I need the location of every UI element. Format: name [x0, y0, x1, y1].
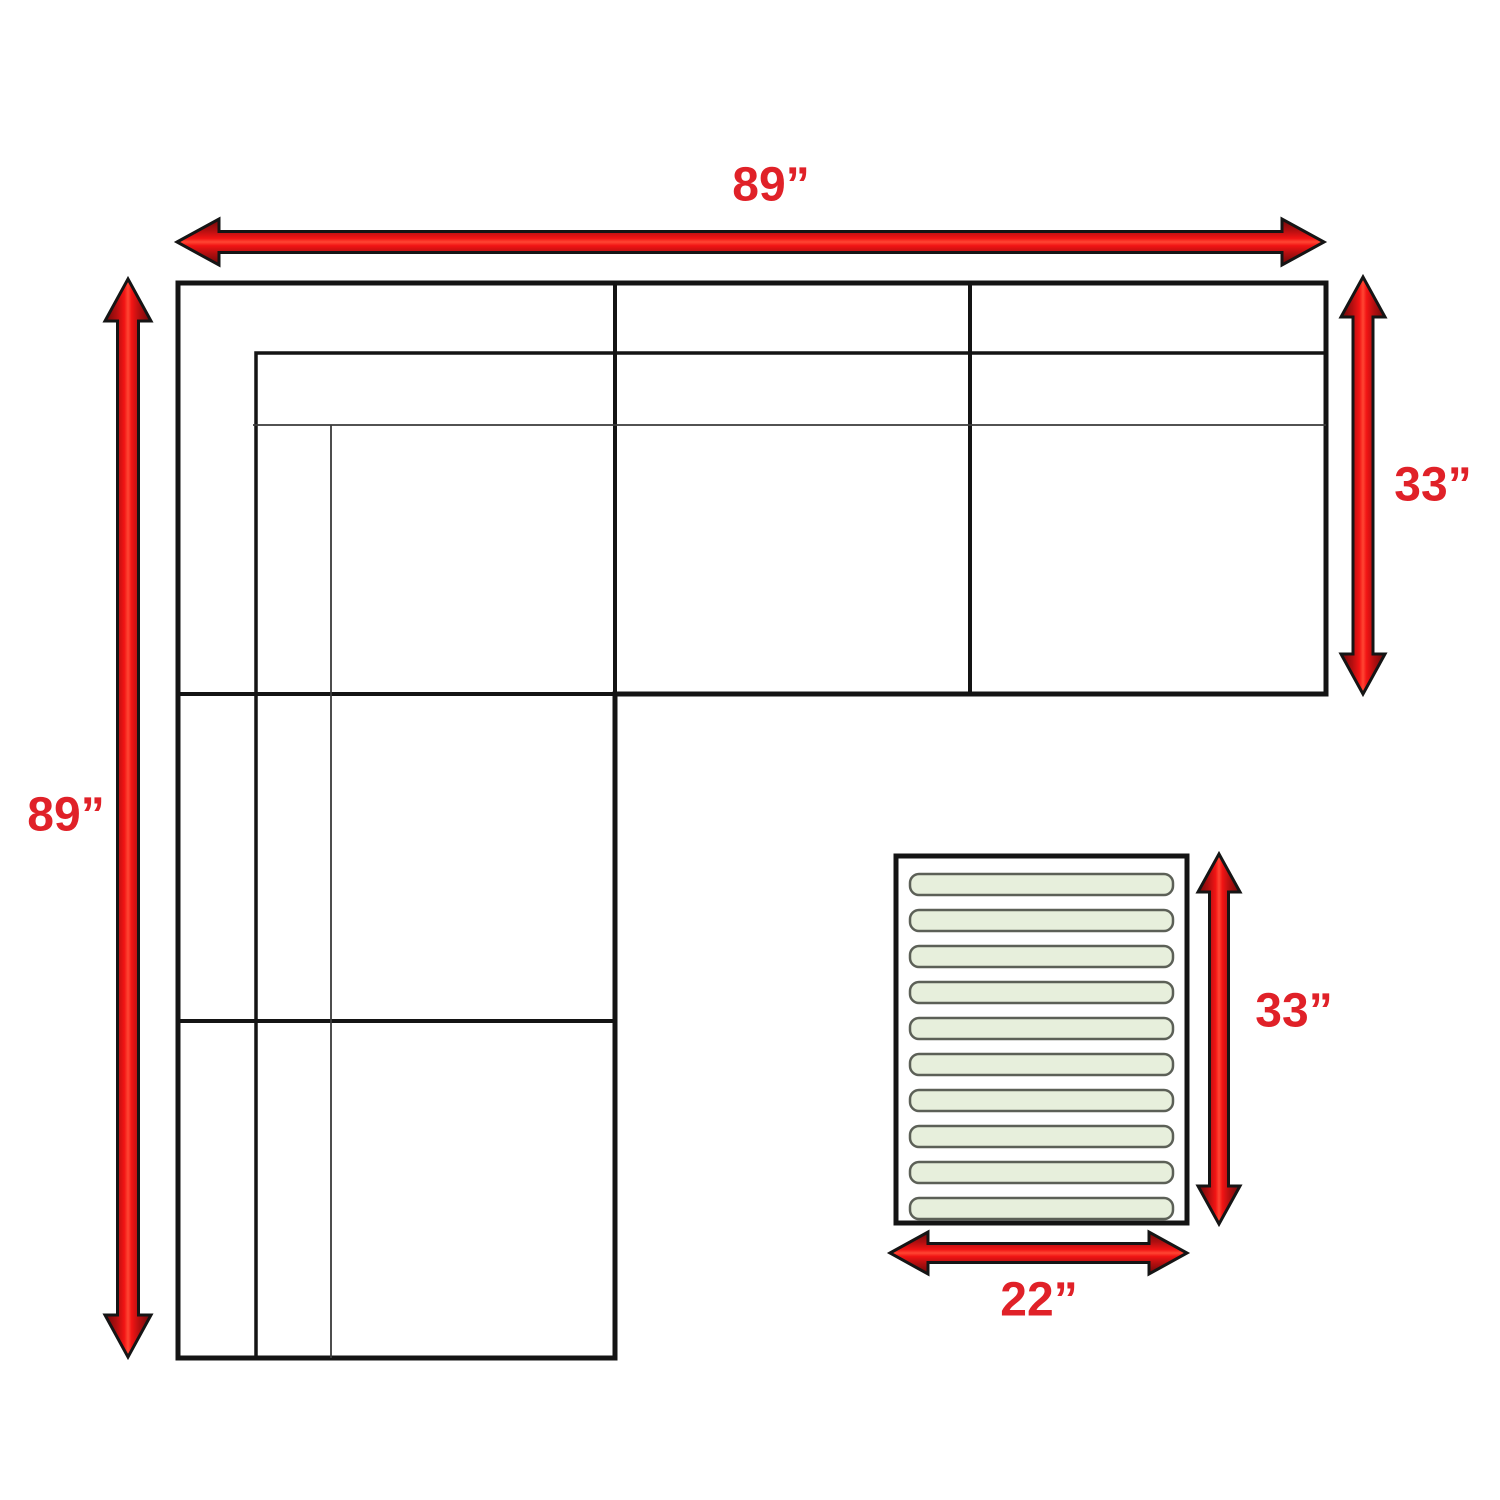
ottoman-length-label: 33” — [1255, 984, 1332, 1039]
ottoman-slat — [910, 1198, 1173, 1219]
ottoman-slat — [910, 1162, 1173, 1183]
ottoman-slat — [910, 946, 1173, 967]
dimension-arrow-ottoman-width — [890, 1232, 1187, 1274]
sofa-depth-label: 33” — [1394, 458, 1471, 513]
dimension-diagram: 89” 89” 33” 33” 22” — [0, 0, 1500, 1500]
ottoman-slat — [910, 1018, 1173, 1039]
ottoman-slat — [910, 982, 1173, 1003]
ottoman-width-label: 22” — [1000, 1273, 1077, 1328]
dimension-arrow-sofa-length — [105, 279, 151, 1357]
ottoman-slat — [910, 874, 1173, 895]
sofa-length-label: 89” — [27, 788, 104, 843]
ottoman-slat — [910, 910, 1173, 931]
ottoman-slat — [910, 1090, 1173, 1111]
dimension-arrow-ottoman-length — [1198, 854, 1240, 1224]
diagram-drawing — [0, 0, 1500, 1500]
ottoman-slat — [910, 1126, 1173, 1147]
sofa-width-label: 89” — [732, 158, 809, 213]
ottoman-top-view — [896, 856, 1187, 1223]
dimension-arrow-sofa-depth — [1341, 277, 1385, 694]
ottoman-slat — [910, 1054, 1173, 1075]
dimension-arrow-sofa-width — [177, 219, 1324, 265]
